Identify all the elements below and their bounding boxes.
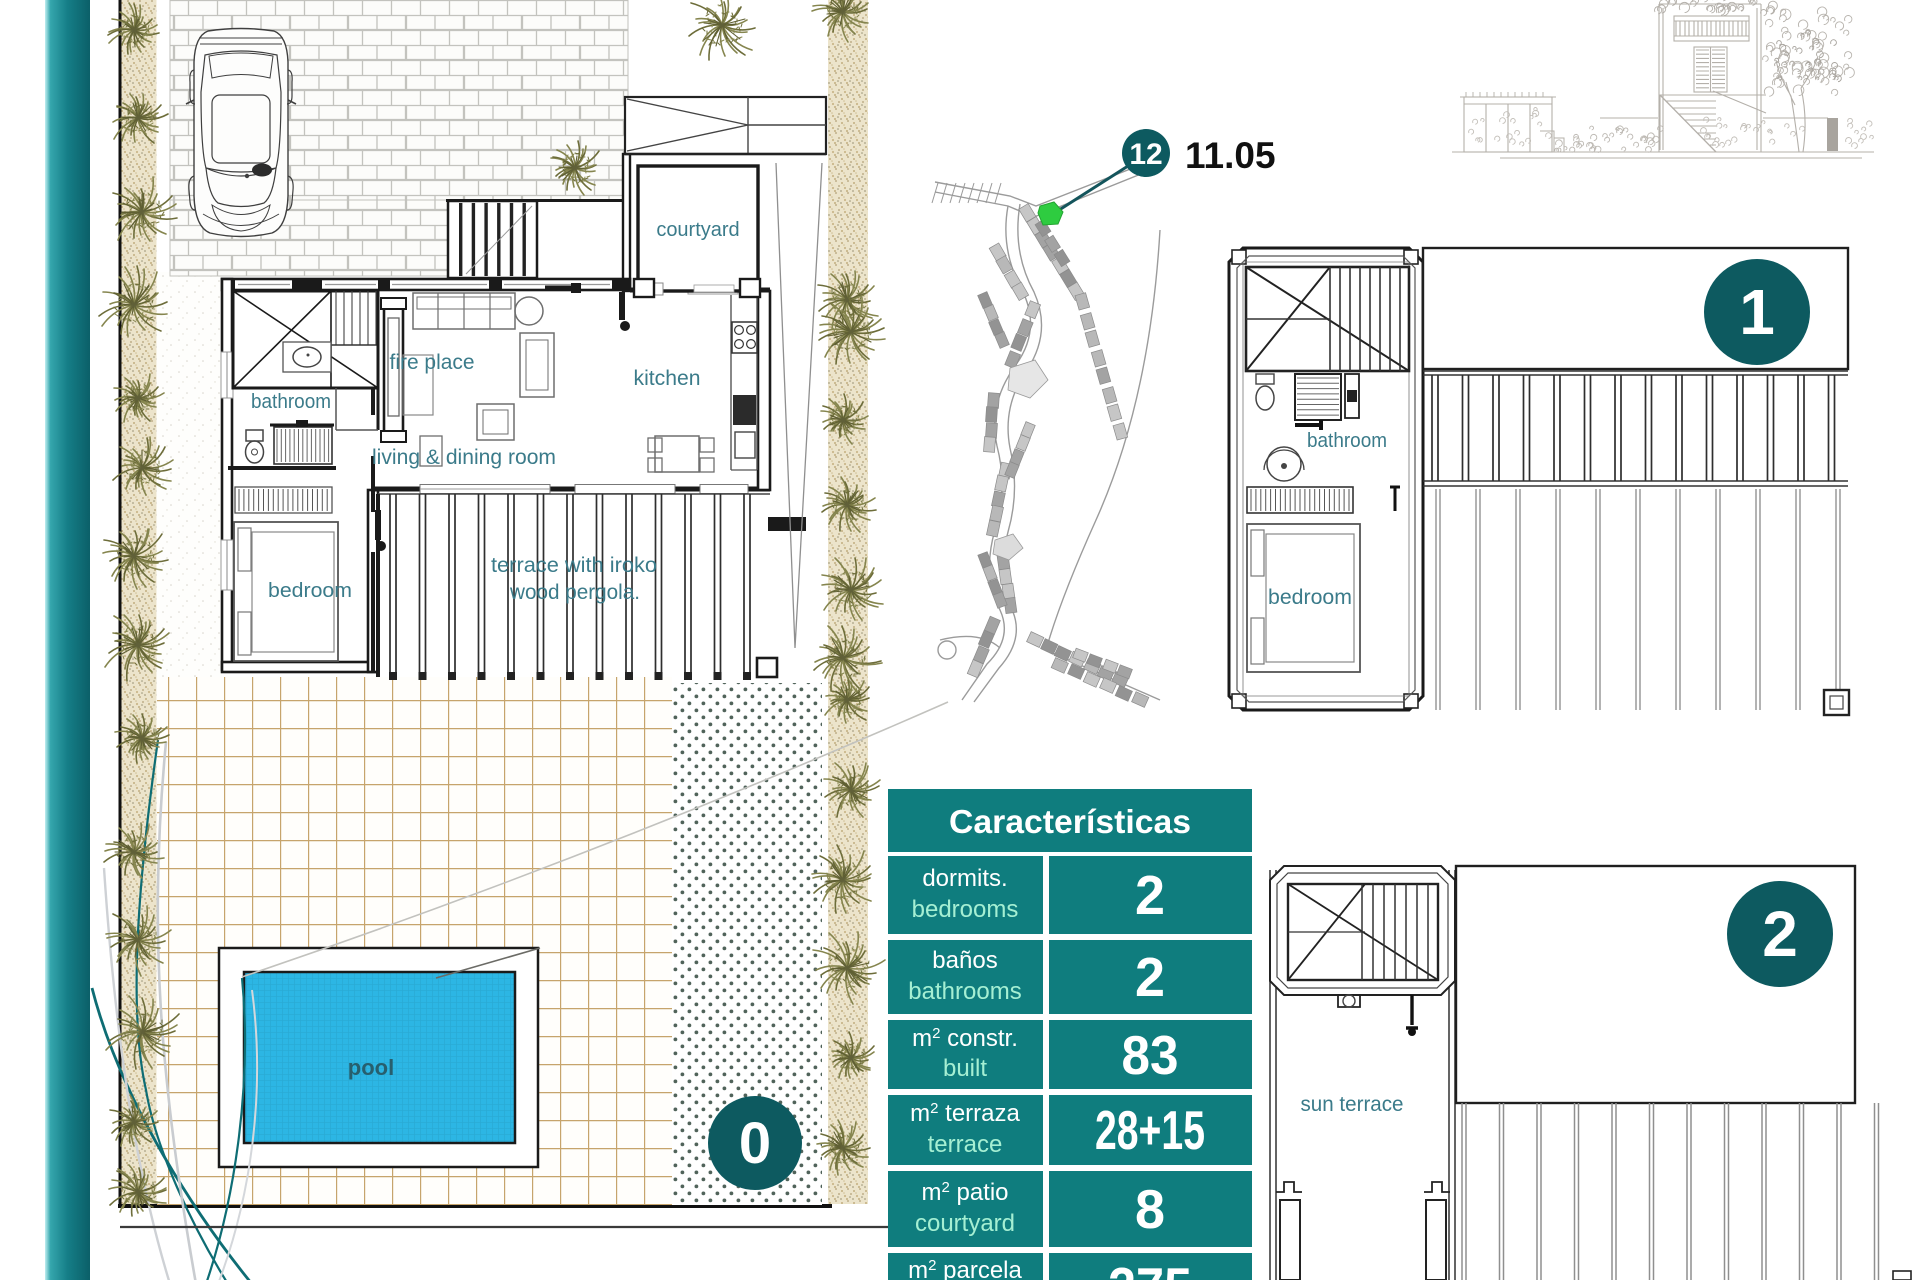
- svg-text:m2 terraza: m2 terraza: [910, 1100, 1020, 1127]
- svg-text:275: 275: [1108, 1256, 1192, 1280]
- svg-text:m2 parcela: m2 parcela: [908, 1257, 1022, 1280]
- svg-text:1: 1: [1739, 276, 1775, 348]
- svg-text:terrace with iroko: terrace with iroko: [491, 554, 657, 577]
- svg-text:0: 0: [739, 1111, 771, 1176]
- svg-text:baños: baños: [932, 947, 997, 974]
- svg-text:living & dining room: living & dining room: [372, 446, 556, 469]
- svg-text:bedroom: bedroom: [268, 580, 352, 602]
- svg-text:28+15: 28+15: [1095, 1099, 1205, 1161]
- svg-text:bedrooms: bedrooms: [912, 896, 1019, 923]
- svg-text:wood pergola.: wood pergola.: [509, 581, 640, 604]
- svg-text:built: built: [943, 1055, 987, 1082]
- svg-text:11.05: 11.05: [1185, 135, 1276, 176]
- svg-text:m2 patio: m2 patio: [921, 1179, 1008, 1206]
- svg-text:2: 2: [1135, 864, 1165, 926]
- svg-text:fire place: fire place: [390, 351, 475, 374]
- svg-text:dormits.: dormits.: [922, 865, 1007, 892]
- svg-text:2: 2: [1762, 898, 1798, 970]
- svg-text:8: 8: [1135, 1178, 1165, 1240]
- svg-text:courtyard: courtyard: [915, 1210, 1015, 1237]
- svg-text:83: 83: [1122, 1024, 1179, 1086]
- svg-text:bathrooms: bathrooms: [908, 978, 1021, 1005]
- svg-text:kitchen: kitchen: [634, 367, 701, 390]
- svg-text:pool: pool: [348, 1055, 394, 1080]
- svg-text:m2 constr.: m2 constr.: [912, 1025, 1018, 1052]
- svg-text:sun terrace: sun terrace: [1301, 1093, 1404, 1116]
- svg-text:12: 12: [1129, 138, 1162, 171]
- svg-text:courtyard: courtyard: [656, 219, 739, 241]
- svg-text:2: 2: [1135, 946, 1165, 1008]
- svg-text:Características: Características: [949, 803, 1191, 840]
- svg-text:bathroom: bathroom: [251, 391, 331, 413]
- svg-text:terrace: terrace: [928, 1131, 1003, 1158]
- svg-text:bedroom: bedroom: [1268, 586, 1352, 609]
- svg-text:bathroom: bathroom: [1307, 430, 1387, 452]
